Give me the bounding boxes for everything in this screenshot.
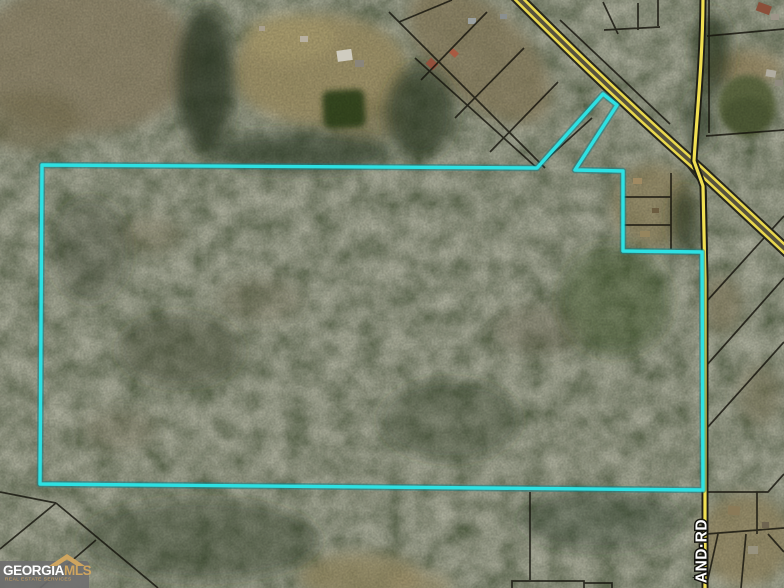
roof-icon — [48, 554, 86, 567]
listing-aerial-screenshot: AND·RD GEORGIAMLS REAL ESTATE SERVICES — [0, 0, 784, 588]
brand-tagline: REAL ESTATE SERVICES — [0, 577, 73, 582]
mls-logo: GEORGIAMLS REAL ESTATE SERVICES — [0, 561, 89, 588]
road-label: AND·RD — [694, 519, 711, 583]
aerial-map: AND·RD — [0, 0, 784, 588]
photo-grain — [0, 0, 784, 588]
